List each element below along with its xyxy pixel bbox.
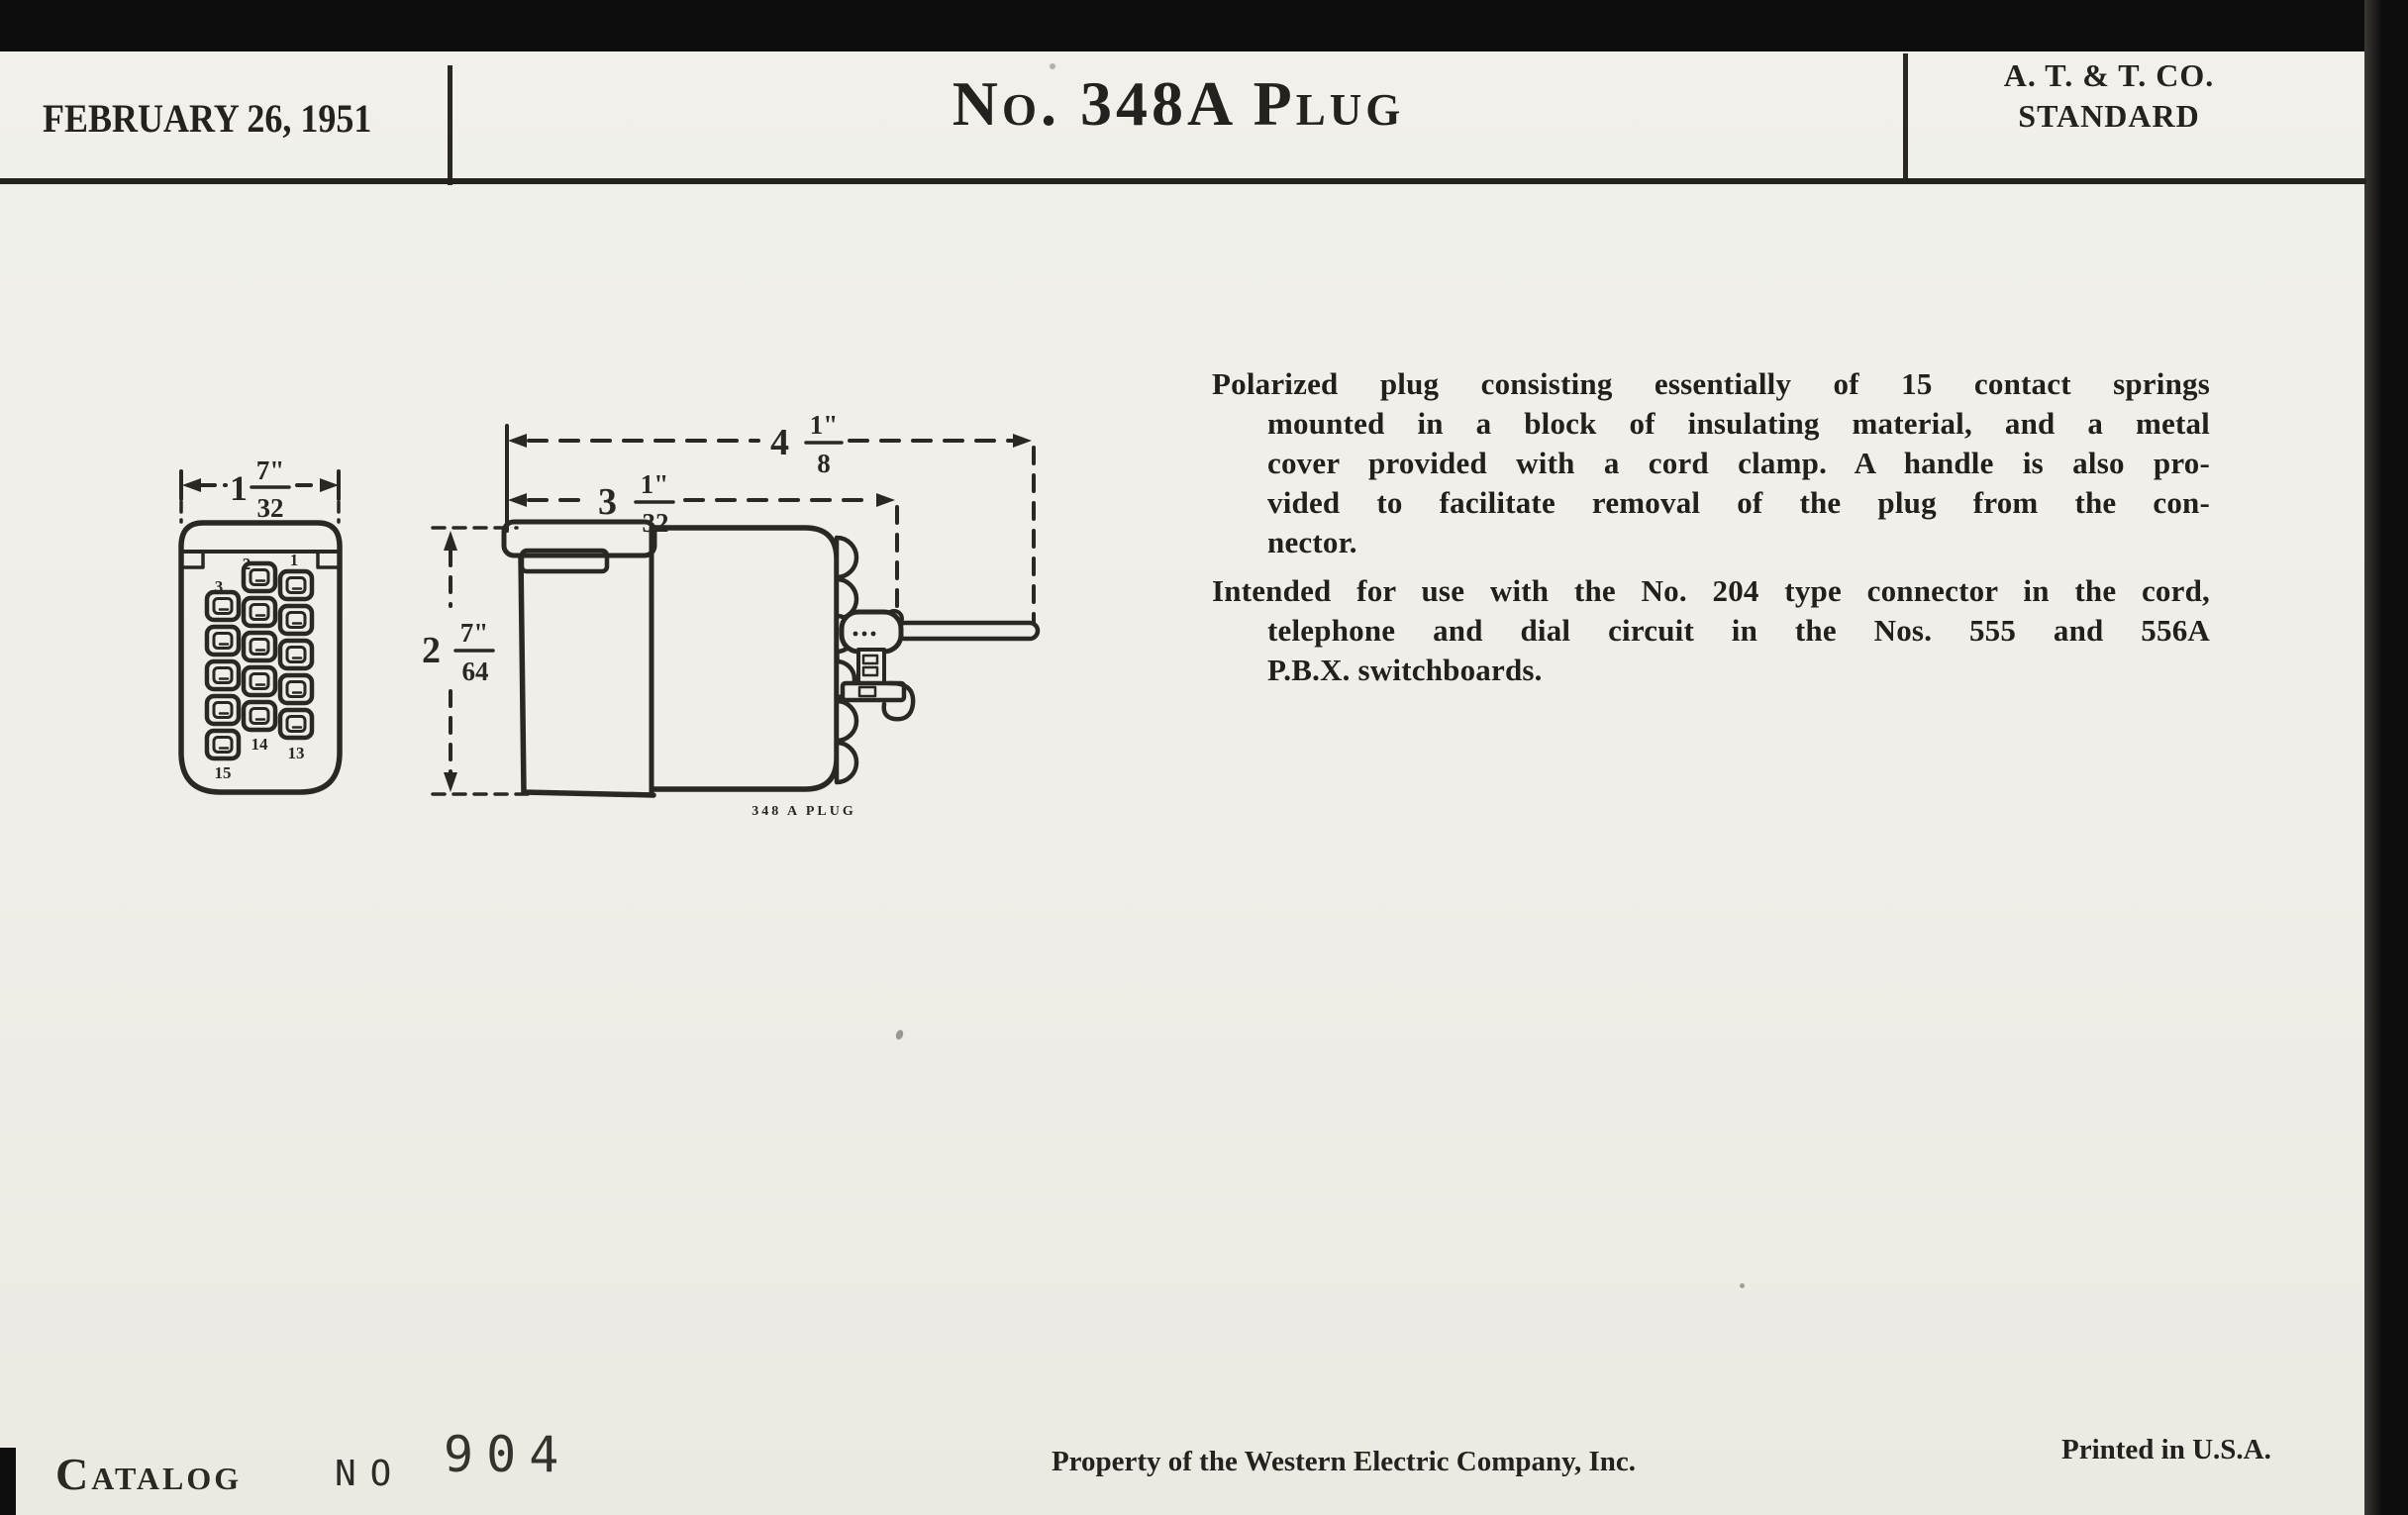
side-height-whole: 2 [422, 630, 441, 671]
contact-spring [207, 627, 239, 655]
header-divider-left [448, 65, 452, 185]
contact-spring [244, 598, 275, 626]
catalog-no-label: NO [335, 1454, 405, 1494]
description-text: Polarized plug consisting essentially of… [1212, 364, 2210, 699]
plug-drawing-svg: 1 7" 32 [139, 391, 1089, 847]
header-divider-right [1903, 53, 1908, 179]
catalog-label: Catalog [55, 1448, 242, 1500]
paragraph-1: Polarized plug consisting essentially of… [1212, 364, 2210, 562]
side-body-numerator: 1" [641, 469, 669, 499]
contact-label-15: 15 [215, 763, 232, 782]
figure-caption: 348 A PLUG [752, 804, 855, 819]
contact-label-1: 1 [290, 551, 299, 569]
scan-speck [1740, 1283, 1745, 1288]
handle-rod [897, 623, 1038, 639]
contact-spring [244, 702, 275, 730]
contact-label-3: 3 [215, 577, 224, 596]
org-line1: A. T. & T. CO. [1941, 55, 2277, 96]
scan-speck [1050, 63, 1055, 69]
side-height-numerator: 7" [460, 618, 489, 648]
front-dim-denominator: 32 [257, 493, 284, 523]
text-line: nector. [1212, 523, 2210, 562]
text-line: telephone and dial circuit in the Nos. 5… [1212, 611, 2210, 651]
handle-and-cord-clamp [842, 611, 1038, 719]
contact-spring [280, 710, 312, 738]
text-line: Intended for use with the No. 204 type c… [1212, 571, 2210, 611]
scan-edge-top [0, 0, 2408, 51]
text-line: cover provided with a cord clamp. A hand… [1212, 444, 2210, 483]
contact-spring [207, 592, 239, 620]
org-standard-block: A. T. & T. CO. STANDARD [1941, 55, 2277, 137]
front-view-width-dimension: 1 7" 32 [181, 455, 339, 523]
page-title: No. 348A Plug [822, 67, 1535, 141]
side-overall-denominator: 8 [817, 449, 831, 478]
side-view-height-dimension: 2 7" 64 [422, 528, 529, 794]
text-line: vided to facilitate removal of the plug … [1212, 483, 2210, 523]
contact-spring [244, 633, 275, 660]
contact-spring [280, 675, 312, 703]
paragraph-2: Intended for use with the No. 204 type c… [1212, 571, 2210, 690]
contact-label-2: 2 [243, 555, 251, 573]
side-overall-whole: 4 [770, 422, 789, 463]
issue-date: FEBRUARY 26, 1951 [43, 95, 371, 142]
contact-spring [207, 731, 239, 758]
handle-hub [842, 612, 901, 652]
catalog-page: FEBRUARY 26, 1951 No. 348A Plug A. T. & … [0, 0, 2408, 1515]
scan-edge-bottom-left [0, 1448, 16, 1515]
front-dim-whole: 1 [230, 468, 248, 508]
technical-drawing: 1 7" 32 [139, 391, 1089, 847]
header-rule [0, 178, 2366, 184]
contact-spring [280, 606, 312, 634]
property-notice: Property of the Western Electric Company… [1002, 1446, 1685, 1478]
front-dim-numerator: 7" [256, 455, 285, 485]
contact-label-13: 13 [288, 744, 305, 762]
org-line2: STANDARD [1941, 96, 2277, 137]
contact-spring [280, 571, 312, 599]
text-line: Polarized plug consisting essentially of… [1212, 364, 2210, 404]
side-overall-numerator: 1" [810, 410, 839, 440]
contact-spring [207, 661, 239, 689]
text-line: mounted in a block of insulating materia… [1212, 404, 2210, 444]
contact-label-14: 14 [251, 735, 269, 754]
contact-spring [244, 667, 275, 695]
side-height-denominator: 64 [462, 656, 489, 686]
contact-spring [280, 641, 312, 668]
printed-in-usa: Printed in U.S.A. [2061, 1434, 2271, 1466]
side-view-overall-dimension: 4 1" 8 [507, 410, 1034, 624]
scan-speck [895, 1029, 905, 1041]
side-view-plug-body [504, 522, 856, 795]
scan-edge-right [2364, 0, 2408, 1515]
side-body-whole: 3 [598, 481, 617, 523]
catalog-number-stamp: 904 [444, 1426, 571, 1483]
text-line: P.B.X. switchboards. [1212, 651, 2210, 690]
contact-spring [207, 696, 239, 724]
